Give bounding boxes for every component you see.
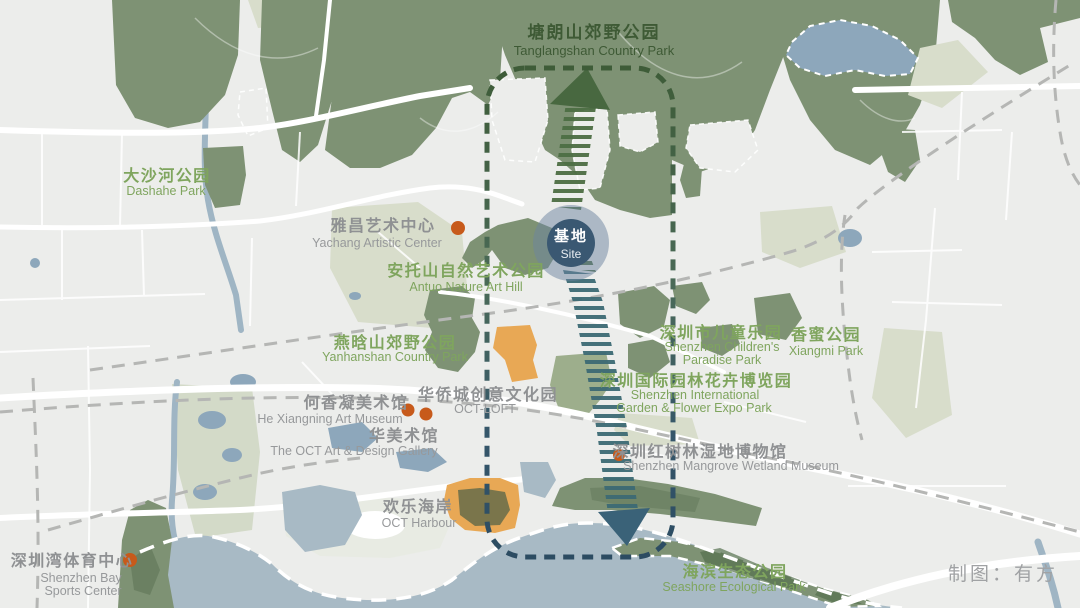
svg-text:雅昌艺术中心: 雅昌艺术中心 — [329, 216, 435, 235]
svg-text:海滨生态公园: 海滨生态公园 — [682, 562, 787, 581]
svg-text:何香凝美术馆: 何香凝美术馆 — [303, 393, 408, 412]
svg-text:香蜜公园: 香蜜公园 — [790, 325, 861, 344]
svg-text:The OCT Art & Design Gallery: The OCT Art & Design Gallery — [270, 444, 438, 458]
svg-text:大沙河公园: 大沙河公园 — [123, 166, 211, 185]
svg-text:欢乐海岸: 欢乐海岸 — [382, 497, 453, 516]
label-yachang: 雅昌艺术中心 Yachang Artistic Center — [312, 216, 442, 250]
svg-text:Yachang Artistic Center: Yachang Artistic Center — [312, 236, 442, 250]
svg-text:Garden & Flower Expo Park: Garden & Flower Expo Park — [616, 401, 772, 415]
svg-text:Yanhanshan Country Park: Yanhanshan Country Park — [322, 350, 468, 364]
map-credit: 制图：有方 — [948, 563, 1058, 585]
svg-text:He Xiangning Art Museum: He Xiangning Art Museum — [257, 412, 402, 426]
label-antuo: 安托山自然艺术公园 Antuo Nature Art Hill — [387, 261, 545, 294]
svg-text:Shenzhen Children's: Shenzhen Children's — [665, 340, 780, 354]
svg-text:安托山自然艺术公园: 安托山自然艺术公园 — [387, 261, 545, 280]
svg-text:Shenzhen Bay: Shenzhen Bay — [40, 571, 122, 585]
svg-text:OCT Harbour: OCT Harbour — [382, 516, 457, 530]
poi-dot-huamuseum — [420, 408, 433, 421]
poi-dot-yachang — [451, 221, 465, 235]
svg-text:Sports Center: Sports Center — [44, 584, 121, 598]
label-dashahe: 大沙河公园 Dashahe Park — [123, 166, 211, 198]
label-octharbour: 欢乐海岸 OCT Harbour — [382, 497, 457, 530]
svg-text:Dashahe Park: Dashahe Park — [126, 184, 206, 198]
site-location-map: 基地 Site 塘朗山郊野公园 Tanglangshan Country Par… — [0, 0, 1080, 608]
label-seashore: 海滨生态公园 Seashore Ecological Park — [662, 562, 806, 594]
site-label-zh: 基地 — [553, 227, 588, 245]
label-xiangmi: 香蜜公园 Xiangmi Park — [789, 325, 864, 358]
svg-text:Seashore Ecological Park: Seashore Ecological Park — [662, 580, 806, 594]
svg-text:Paradise Park: Paradise Park — [683, 353, 762, 367]
svg-text:OCT-LOFT: OCT-LOFT — [454, 402, 516, 416]
svg-text:华美术馆: 华美术馆 — [369, 426, 439, 445]
svg-text:Tanglangshan Country Park: Tanglangshan Country Park — [514, 43, 675, 58]
svg-text:Shenzhen International: Shenzhen International — [631, 388, 760, 402]
map-canvas: 基地 Site 塘朗山郊野公园 Tanglangshan Country Par… — [0, 0, 1080, 608]
svg-text:塘朗山郊野公园: 塘朗山郊野公园 — [528, 22, 661, 42]
svg-text:Shenzhen Mangrove Wetland Muse: Shenzhen Mangrove Wetland Museum — [623, 459, 839, 473]
label-yanhanshan: 燕晗山郊野公园 Yanhanshan Country Park — [322, 333, 468, 364]
site-label-en: Site — [561, 247, 582, 261]
svg-text:Antuo Nature Art Hill: Antuo Nature Art Hill — [409, 280, 522, 294]
svg-text:深圳湾体育中心: 深圳湾体育中心 — [11, 551, 134, 570]
label-tanglangshan: 塘朗山郊野公园 Tanglangshan Country Park — [514, 22, 675, 58]
svg-text:Xiangmi Park: Xiangmi Park — [789, 344, 864, 358]
